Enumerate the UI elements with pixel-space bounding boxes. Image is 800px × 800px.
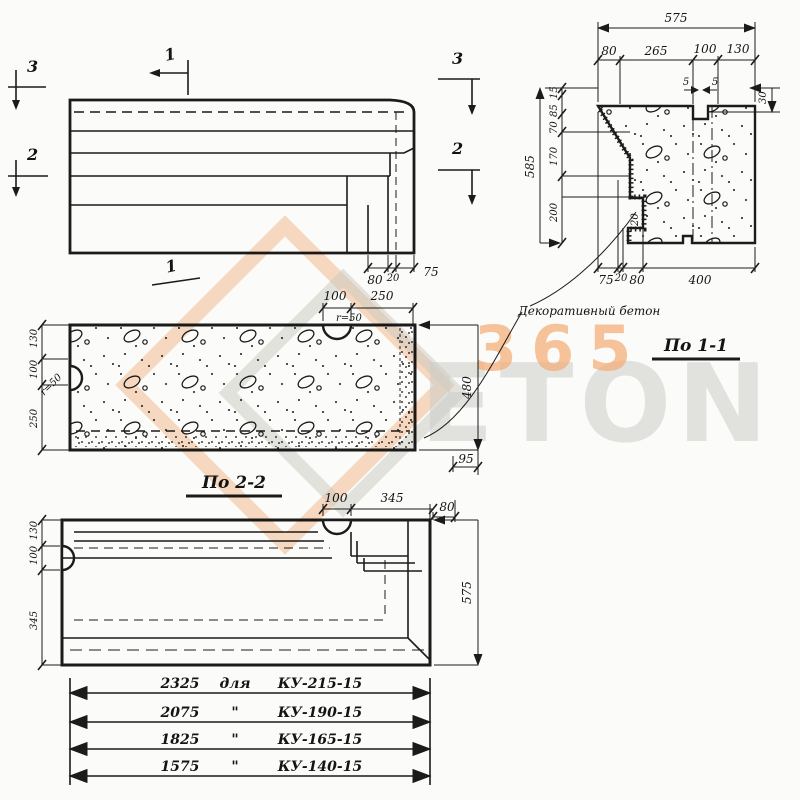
row2-mark: КУ-190-15 <box>277 705 362 721</box>
section-1-1-view: 575 80 265 100 130 5 5 30 585 15 85 70 1… <box>424 11 780 438</box>
elevation-view: 80 20 75 <box>70 100 439 287</box>
drawing-canvas: 80 20 75 3 2 1 1 3 2 575 80 265 100 <box>0 0 800 800</box>
row3-length: 1825 <box>161 732 200 748</box>
length-table: 2325 для КУ-215-15 2075 " КУ-190-15 1825… <box>70 676 430 785</box>
sec-dim-585: 585 <box>523 155 537 178</box>
table-row: 2075 " КУ-190-15 <box>160 705 363 721</box>
sec-dim-30: 30 <box>758 91 769 104</box>
table-row: 1825 " КУ-165-15 <box>161 732 363 748</box>
plan22-dim-130: 130 <box>29 328 40 348</box>
row3-sep: " <box>231 732 238 748</box>
mark-2-left: 2 <box>26 145 38 164</box>
planb-dim-100: 100 <box>325 491 348 505</box>
row1-length: 2325 <box>160 676 200 692</box>
plan22-dim-250: 250 <box>370 289 394 303</box>
elev-dim-75: 75 <box>423 265 438 279</box>
section-marks: 3 2 1 1 3 2 <box>8 44 480 285</box>
row1-mark: КУ-215-15 <box>277 676 362 692</box>
plan22-dim-480: 480 <box>460 376 474 400</box>
mark-3-left: 3 <box>27 57 38 76</box>
sec-dim-265: 265 <box>644 44 668 58</box>
sec-dim-5b: 5 <box>712 77 718 88</box>
sec-dim-b80: 80 <box>629 273 645 287</box>
table-row: 1575 " КУ-140-15 <box>161 759 363 775</box>
decorative-concrete-note: Декоративный бетон <box>517 304 660 318</box>
sec-dim-400: 400 <box>688 273 712 287</box>
plan-2-2-title: По 2-2 <box>201 473 266 493</box>
row3-mark: КУ-165-15 <box>277 732 362 748</box>
sec-dim-100: 100 <box>694 42 717 56</box>
row4-mark: КУ-140-15 <box>277 759 362 775</box>
sec-dim-5a: 5 <box>683 77 689 88</box>
planb-dim-l100: 100 <box>29 545 40 565</box>
table-row: 2325 для КУ-215-15 <box>160 676 363 692</box>
mark-2-right: 2 <box>451 139 463 158</box>
row1-sep: для <box>219 676 250 692</box>
sec-dim-85: 85 <box>549 104 560 117</box>
sec-dim-170: 170 <box>549 146 560 166</box>
sec-dim-80: 80 <box>601 44 617 58</box>
plan22-dim-l250: 250 <box>29 408 40 429</box>
sec-dim-575: 575 <box>665 11 688 25</box>
plan22-radius-top: r=50 <box>336 313 363 324</box>
planb-dim-345: 345 <box>381 491 404 505</box>
elev-dim-80: 80 <box>367 273 383 287</box>
bottom-plan-view: 100 345 80 575 130 100 345 <box>29 491 478 670</box>
plan22-dim-95: 95 <box>458 452 473 466</box>
sec-dim-b20: 20 <box>614 273 628 284</box>
planb-dim-130: 130 <box>29 520 40 540</box>
sec-dim-130: 130 <box>727 42 750 56</box>
plan22-dim-l100: 100 <box>29 359 40 379</box>
planb-dim-l345: 345 <box>29 611 40 630</box>
plan22-dim-100: 100 <box>324 289 347 303</box>
sec-dim-inner-20: 20 <box>630 213 641 227</box>
drawing-sheet: 80 20 75 3 2 1 1 3 2 575 80 265 100 <box>0 0 800 800</box>
row4-length: 1575 <box>161 759 200 775</box>
elev-dim-20: 20 <box>386 273 400 284</box>
planb-dim-575: 575 <box>460 581 474 604</box>
section-1-1-title: По 1-1 <box>663 336 728 356</box>
planb-dim-80: 80 <box>439 500 455 514</box>
sec-dim-15: 15 <box>549 86 560 99</box>
plan-2-2-view: 100 250 r=50 130 100 250 r=50 480 95 По … <box>29 289 482 496</box>
mark-1-bottom: 1 <box>164 256 179 277</box>
sec-dim-70: 70 <box>549 121 560 134</box>
row2-sep: " <box>231 705 238 721</box>
sec-dim-b75: 75 <box>598 273 613 287</box>
sec-dim-200: 200 <box>549 202 560 223</box>
mark-1-top: 1 <box>163 44 178 65</box>
row4-sep: " <box>231 759 238 775</box>
mark-3-right: 3 <box>452 49 463 68</box>
row2-length: 2075 <box>160 705 200 721</box>
